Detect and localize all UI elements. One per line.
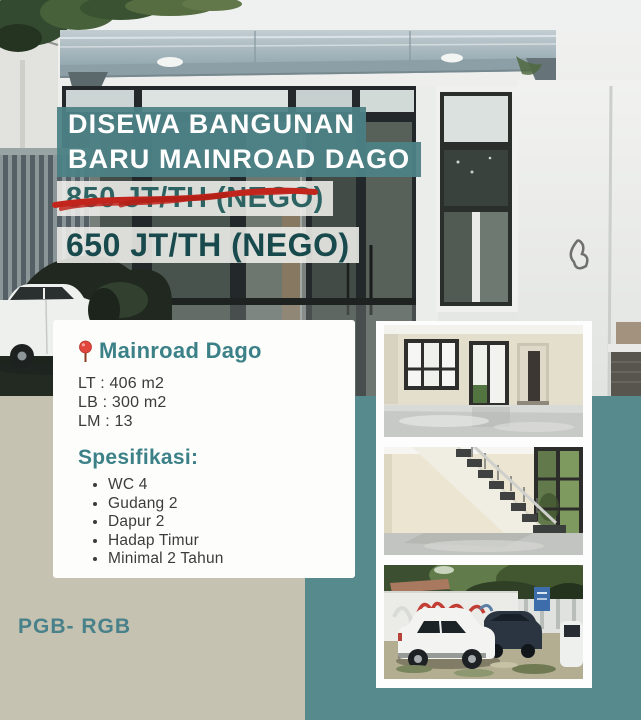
location-pin-icon: [78, 340, 93, 363]
headline-banner: DISEWA BANGUNAN BARU MAINROAD DAGO: [57, 107, 421, 177]
spec-item: Gudang 2: [108, 497, 337, 511]
gallery-photo-interior-showroom: [384, 325, 583, 437]
location-title: Mainroad Dago: [99, 338, 262, 364]
spec-list: WC 4 Gudang 2 Dapur 2 Hadap Timur Minima…: [78, 478, 337, 566]
detail-line-lt: LT : 406 m2: [78, 374, 337, 393]
old-price-text: 850 JT/TH (NEGO): [66, 182, 324, 214]
photo-gallery: [376, 321, 592, 688]
new-price: 650 JT/TH (NEGO): [57, 227, 359, 263]
gallery-photo-exterior-parking: [384, 565, 583, 679]
agency-code: PGB- RGB: [18, 615, 131, 639]
headline-line-2: BARU MAINROAD DAGO: [57, 142, 421, 177]
gallery-photo-interior-staircase: [384, 447, 583, 555]
property-info-card: Mainroad Dago LT : 406 m2 LB : 300 m2 LM…: [53, 320, 355, 578]
property-details: LT : 406 m2 LB : 300 m2 LM : 13: [78, 374, 337, 431]
detail-line-lb: LB : 300 m2: [78, 393, 337, 412]
location-row: Mainroad Dago: [78, 338, 337, 364]
new-price-text: 650 JT/TH (NEGO): [66, 227, 350, 263]
detail-line-lm: LM : 13: [78, 412, 337, 431]
spec-item: Minimal 2 Tahun: [108, 552, 337, 566]
spec-item: Hadap Timur: [108, 534, 337, 548]
old-price: 850 JT/TH (NEGO): [57, 181, 333, 216]
rental-flyer: DISEWA BANGUNAN BARU MAINROAD DAGO 850 J…: [0, 0, 641, 720]
spec-item: WC 4: [108, 478, 337, 492]
spec-item: Dapur 2: [108, 515, 337, 529]
headline-line-1: DISEWA BANGUNAN: [57, 107, 366, 142]
spec-heading: Spesifikasi:: [78, 445, 337, 470]
